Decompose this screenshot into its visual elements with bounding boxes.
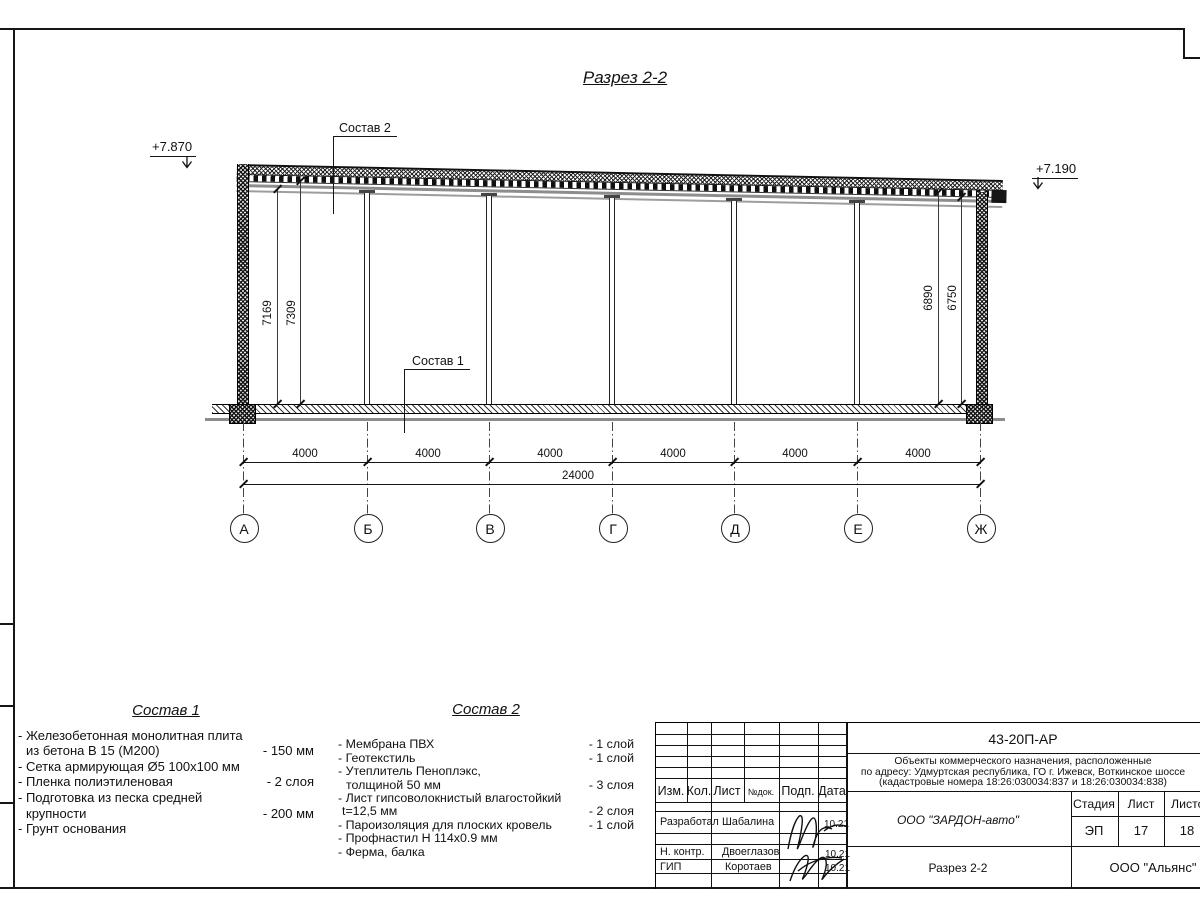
axis-bubble-e: Е: [844, 514, 873, 543]
axis-line: [243, 422, 244, 514]
column: [609, 198, 615, 404]
frame-left-tick: [0, 623, 13, 625]
signer-name: Шабалина: [722, 816, 774, 828]
callout-floor-label: Состав 1: [412, 354, 464, 368]
sheets-value: 18: [1180, 823, 1194, 838]
title-block-line: [656, 778, 846, 779]
dim-line-vertical: [277, 189, 278, 404]
frame-corner-bracket-v: [1183, 28, 1185, 58]
title-block-line: [846, 753, 1200, 754]
axis-line: [367, 422, 368, 514]
sheets-label: Листов: [1171, 797, 1200, 811]
signer-name: Коротаев: [725, 861, 772, 873]
col-header-data: Дата: [818, 784, 846, 798]
list-item: - Профнастил Н 114х0.9 мм: [338, 832, 634, 845]
contractor-company: ООО "Альянс": [1110, 860, 1197, 875]
foundation-block-right: [966, 404, 993, 424]
frame-left-tick: [0, 705, 13, 707]
axis-line: [734, 422, 735, 514]
list-item: - Железобетонная монолитная плитаиз бето…: [18, 728, 314, 759]
composition-1-title: Состав 1: [18, 703, 314, 719]
signer-role: Разработал: [660, 816, 719, 828]
dim-line-vertical: [300, 181, 301, 404]
height-dim-6890: 6890: [923, 268, 935, 328]
axis-line: [857, 422, 858, 514]
list-item: - Пленка полиэтиленовая - 2 слоя: [18, 774, 314, 790]
bay-dim: 4000: [660, 448, 686, 460]
title-block-line: [1164, 791, 1165, 846]
elevation-mark-left: +7.870: [152, 139, 192, 154]
section-title: Разрез 2-2: [560, 68, 690, 88]
title-block-line: [846, 791, 1200, 792]
height-dim-7309: 7309: [286, 283, 298, 343]
title-block-line: [711, 723, 712, 889]
bay-dim: 4000: [292, 448, 318, 460]
composition-2-title: Состав 2: [338, 703, 634, 716]
callout-leader: [333, 136, 334, 214]
list-item: - Пароизоляция для плоских кровель - 1 с…: [338, 819, 634, 832]
title-block-line: [656, 734, 846, 735]
axis-bubble-v: В: [476, 514, 505, 543]
elevation-mark-right: +7.190: [1036, 161, 1076, 176]
sheet-value: 17: [1134, 823, 1148, 838]
axis-bubble-b: Б: [354, 514, 383, 543]
title-block: Изм. Кол. Лист №док. Подп. Дата Разработ…: [655, 722, 1200, 889]
dim-line-vertical: [961, 197, 962, 404]
height-dim-6750: 6750: [947, 268, 959, 328]
axis-bubble-a: А: [230, 514, 259, 543]
col-header-izm: Изм.: [658, 784, 685, 798]
signer-role: Н. контр.: [660, 846, 705, 858]
col-header-kol: Кол.: [687, 784, 712, 798]
project-description-line: Объекты коммерческого назначения, распол…: [894, 756, 1151, 767]
list-item: - Мембрана ПВХ - 1 слой: [338, 738, 634, 751]
callout-leader: [404, 369, 405, 433]
list-item: - Ферма, балка: [338, 846, 634, 859]
axis-bubble-d: Д: [721, 514, 750, 543]
title-block-line: [656, 756, 846, 757]
title-block-line: [1118, 791, 1119, 846]
total-dim: 24000: [562, 470, 594, 482]
floor-slab: [212, 404, 992, 414]
designer-company: ООО "ЗАРДОН-авто": [897, 813, 1019, 827]
col-header-podp: Подп.: [781, 784, 814, 798]
axis-line: [980, 422, 981, 514]
composition-list-2: Состав 2 - Мембрана ПВХ - 1 слой - Геоте…: [338, 703, 634, 859]
axis-line: [489, 422, 490, 514]
frame-left-tick: [0, 802, 13, 804]
axis-letter: Б: [363, 521, 372, 537]
list-item: - Лист гипсоволокнистый влагостойкийt=12…: [338, 792, 634, 819]
list-item: - Утеплитель Пеноплэкс,толщиной 50 мм - …: [338, 765, 634, 792]
elevation-arrow-icon: [180, 156, 195, 170]
title-block-line: [656, 767, 846, 768]
left-wall: [237, 164, 249, 412]
frame-corner-bracket-h: [1183, 57, 1200, 59]
col-header-ndok: №док.: [748, 787, 774, 797]
elevation-arrow-icon: [1031, 177, 1046, 191]
drawing-name: Разрез 2-2: [929, 861, 988, 875]
project-description-line: по адресу: Удмуртская республика, ГО г. …: [861, 767, 1185, 778]
right-wall: [976, 192, 988, 412]
col-header-list: Лист: [713, 784, 740, 798]
axis-line: [612, 422, 613, 514]
foundation-block-left: [229, 404, 256, 424]
callout-roof-label: Состав 2: [339, 121, 391, 135]
stage-value: ЭП: [1085, 823, 1104, 838]
axis-letter: Е: [853, 521, 862, 537]
drawing-sheet: Разрез 2-2 +7.870 +7.190: [0, 0, 1200, 900]
stage-label: Стадия: [1073, 797, 1115, 811]
list-item: - Грунт основания: [18, 821, 314, 837]
axis-letter: Д: [730, 521, 739, 537]
frame-left-line: [13, 28, 15, 889]
sheet-label: Лист: [1128, 797, 1155, 811]
frame-top-line: [0, 28, 1185, 30]
signature-scribble: [780, 799, 846, 887]
list-item: - Геотекстиль - 1 слой: [338, 752, 634, 765]
list-item: - Подготовка из песка среднейкрупности -…: [18, 790, 314, 821]
title-block-line: [1071, 816, 1200, 817]
roof-assembly: [236, 164, 1002, 208]
height-dim-7169: 7169: [262, 283, 274, 343]
column: [854, 203, 860, 404]
bay-dim: 4000: [537, 448, 563, 460]
list-item: - Сетка армирующая Ø5 100х100 мм: [18, 759, 314, 775]
doc-code: 43-20П-АР: [988, 731, 1057, 747]
ground-line: [205, 418, 1005, 421]
axis-letter: А: [239, 521, 248, 537]
composition-list-1: Состав 1 - Железобетонная монолитная пли…: [18, 703, 314, 837]
signer-role: ГИП: [660, 861, 681, 873]
title-block-line: [656, 745, 846, 746]
dim-line-vertical: [938, 192, 939, 404]
bay-dim: 4000: [415, 448, 441, 460]
axis-letter: Ж: [975, 521, 988, 537]
callout-leader: [404, 369, 470, 370]
axis-letter: Г: [609, 521, 617, 537]
axis-letter: В: [485, 521, 494, 537]
dim-line-total: [243, 484, 980, 485]
column: [364, 193, 370, 404]
title-block-line: [846, 846, 1200, 847]
project-description-line: (кадастровые номера 18:26:030034:837 и 1…: [879, 777, 1167, 788]
bay-dim: 4000: [905, 448, 931, 460]
column: [486, 196, 492, 404]
roof-edge-cap: [991, 190, 1006, 203]
axis-bubble-g: Г: [599, 514, 628, 543]
axis-bubble-zh: Ж: [967, 514, 996, 543]
signer-name: Двоеглазов: [722, 846, 779, 858]
callout-leader: [333, 136, 397, 137]
bay-dim: 4000: [782, 448, 808, 460]
column: [731, 201, 737, 404]
